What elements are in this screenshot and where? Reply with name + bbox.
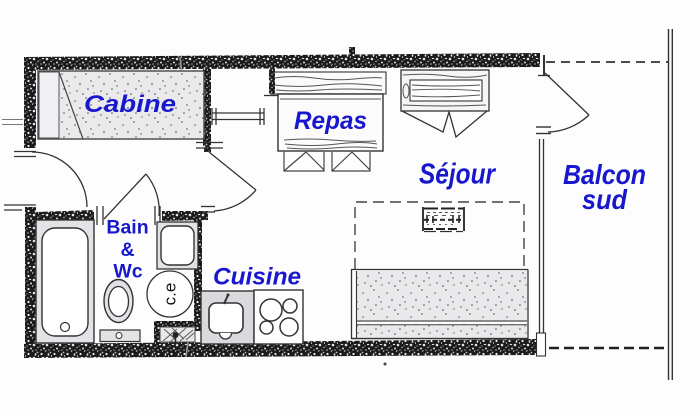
- svg-text:Bain: Bain: [106, 217, 148, 239]
- svg-text:Repas: Repas: [294, 107, 367, 135]
- svg-text:c.e: c.e: [161, 283, 180, 306]
- svg-text:Wc: Wc: [113, 261, 142, 283]
- svg-text:Cabine: Cabine: [84, 91, 176, 118]
- svg-text:Séjour: Séjour: [419, 159, 496, 191]
- svg-text:Cuisine: Cuisine: [213, 264, 301, 291]
- svg-text:sud: sud: [582, 184, 628, 215]
- svg-text:&: &: [120, 239, 134, 261]
